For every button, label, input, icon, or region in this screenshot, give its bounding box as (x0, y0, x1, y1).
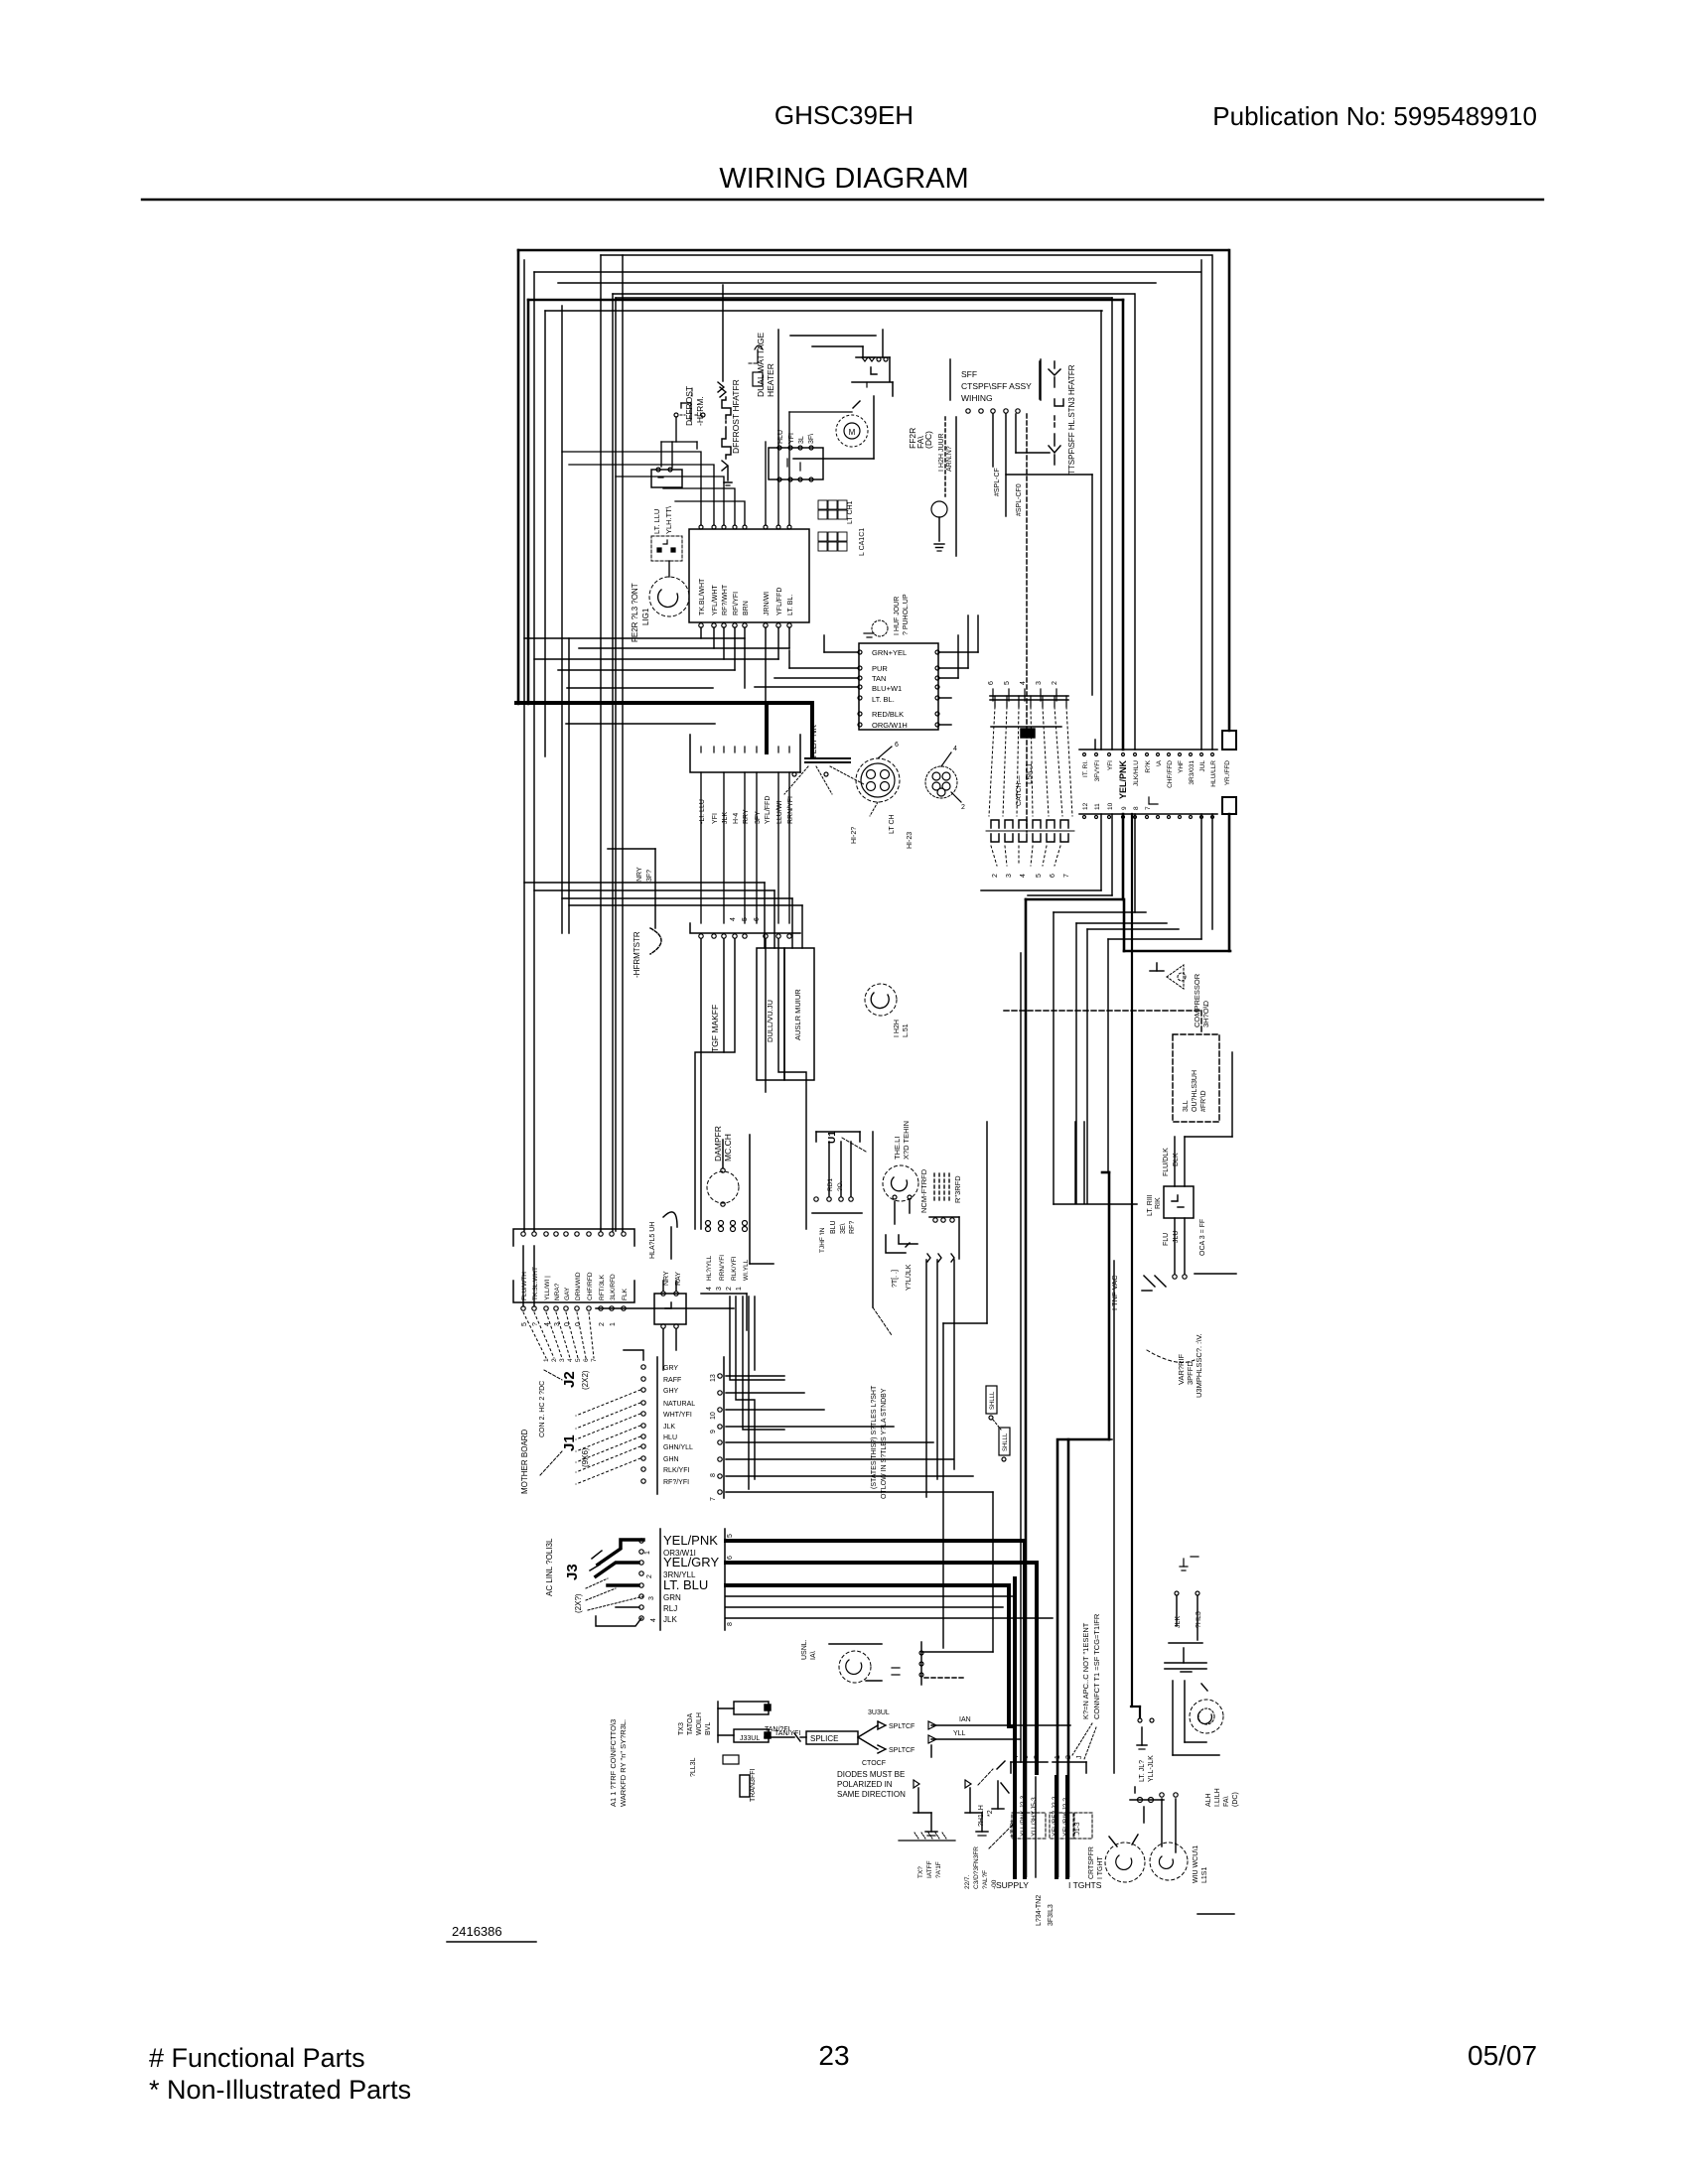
svg-text:BRN: BRN (743, 601, 750, 615)
svg-text:RRY: RRY (743, 809, 750, 824)
svg-text:RLJ: RLJ (663, 1604, 677, 1613)
svg-text:I.LILH: I.LILH (1214, 1788, 1221, 1807)
svg-text:JLU: JLU (1173, 1231, 1180, 1243)
svg-text:AC LINL ?OLI3L: AC LINL ?OLI3L (545, 1538, 554, 1596)
svg-text:TAN/?FI: TAN/?FI (765, 1726, 790, 1733)
svg-text:HI-2?: HI-2? (851, 827, 858, 844)
svg-text:3LK/RFD: 3LK/RFD (610, 1274, 617, 1300)
svg-text:2: 2 (726, 1287, 733, 1291)
svg-text:FA\: FA\ (1223, 1796, 1230, 1807)
svg-text:#SPL-CF0: #SPL-CF0 (1016, 483, 1023, 516)
svg-text:CRTSPFR: CRTSPFR (1088, 1846, 1095, 1879)
svg-text:3F\: 3F\ (808, 434, 815, 444)
svg-text:MOTHER BOARD: MOTHER BOARD (520, 1429, 529, 1494)
svg-text:TGF MAKFF: TGF MAKFF (710, 1005, 720, 1052)
svg-text:COMPRESSOR: COMPRESSOR (1193, 973, 1201, 1027)
svg-text:? PUHOL.UP: ? PUHOL.UP (903, 594, 910, 635)
svg-text:3L: 3L (798, 436, 805, 444)
svg-text:GRN: GRN (663, 1593, 681, 1602)
svg-text:3F\/YFI: 3F\/YFI (1094, 760, 1101, 782)
svg-text:6: 6 (988, 681, 995, 685)
svg-text:CTOCF: CTOCF (862, 1760, 886, 1767)
svg-text:3: 3 (559, 1358, 566, 1362)
svg-text:TK.BL/WHT: TK.BL/WHT (699, 578, 706, 615)
svg-text:YFL/WHT: YFL/WHT (712, 585, 719, 615)
svg-text:3PFFD: 3PFFD (1186, 1361, 1195, 1385)
svg-text:2: 2 (599, 1322, 606, 1326)
svg-text:HL?/YLL: HL?/YLL (706, 1255, 713, 1281)
svg-text:WHT/YFI: WHT/YFI (663, 1412, 692, 1419)
svg-text:(STATES THIS?) S?TLES L?SHT: (STATES THIS?) S?TLES L?SHT (871, 1385, 878, 1489)
svg-text:IAN: IAN (959, 1716, 971, 1723)
svg-text:3F?: 3F? (646, 870, 653, 882)
svg-text:13: 13 (710, 1374, 717, 1382)
svg-text:JLK: JLK (722, 812, 729, 824)
svg-text:?T[. .]: ?T[. .] (892, 1270, 899, 1288)
svg-text:3: 3 (1006, 874, 1013, 878)
svg-text:LT. BLU: LT. BLU (663, 1577, 708, 1592)
svg-text:NATURAL: NATURAL (663, 1401, 695, 1408)
svg-text:RRN/YFI: RRN/YFI (787, 796, 794, 824)
svg-text:I H2H: I H2H (894, 1020, 901, 1037)
svg-text:SPLICE: SPLICE (810, 1734, 838, 1743)
svg-text:SHLLL: SHLLL (1003, 1433, 1009, 1451)
svg-text:4: 4 (650, 1618, 657, 1622)
svg-text:LLU/WI: LLU/WI (776, 801, 783, 824)
svg-text:GHY: GHY (663, 1388, 679, 1395)
svg-text:J33UL: J33UL (740, 1735, 760, 1742)
svg-text:9: 9 (1121, 806, 1128, 810)
svg-text:RLK/YFI: RLK/YFI (731, 1256, 738, 1281)
svg-text:K?=N APC..C NOT "1ESENT: K?=N APC..C NOT "1ESENT (1081, 1622, 1090, 1719)
svg-text:-LI. LLU: -LI. LLU (699, 799, 706, 824)
svg-text:X?D TEHIN: X?D TEHIN (902, 1121, 911, 1160)
svg-text:SPLTCF: SPLTCF (889, 1747, 914, 1754)
svg-text:3R3/031: 3R3/031 (1189, 760, 1196, 785)
svg-text:DFFROST: DFFROST (684, 386, 694, 426)
svg-text:2: 2 (1052, 681, 1058, 685)
svg-text:RF?: RF? (849, 1221, 856, 1234)
svg-text:HLA?L5 UH: HLA?L5 UH (649, 1222, 656, 1259)
svg-text:(2X?): (2X?) (574, 1593, 583, 1613)
svg-text:GHSC39EH: GHSC39EH (774, 100, 914, 130)
svg-text:1: 1 (543, 1358, 550, 1362)
svg-text:05/07: 05/07 (1468, 2040, 1537, 2071)
svg-text:(DC): (DC) (923, 431, 933, 449)
svg-text:NRY: NRY (636, 867, 643, 882)
svg-text:YEL/PNK: YEL/PNK (1118, 760, 1128, 800)
svg-text:6: 6 (1023, 1755, 1030, 1759)
svg-text:3: 3 (1036, 681, 1043, 685)
svg-text:RAFF: RAFF (663, 1377, 681, 1384)
svg-text:YLL-JLK: YLL-JLK (1148, 1755, 1155, 1782)
svg-text:R?K: R?K (1145, 759, 1152, 772)
svg-text:WIHING: WIHING (961, 393, 993, 403)
svg-text:TAN: TAN (872, 674, 886, 683)
svg-text:Y?L/JLK: Y?L/JLK (906, 1264, 913, 1291)
svg-text:FE2R ?L3 ?ONT: FE2R ?L3 ?ONT (631, 583, 639, 642)
svg-text:CON 2. HC 2 ?DC: CON 2. HC 2 ?DC (539, 1381, 546, 1437)
svg-text:9: 9 (710, 1430, 717, 1433)
svg-text:GHN/YLL: GHN/YLL (663, 1444, 693, 1451)
svg-text:HEATER: HEATER (766, 363, 775, 397)
svg-text:6: 6 (1050, 874, 1056, 878)
svg-text:DFFROST HFATFR: DFFROST HFATFR (731, 379, 741, 454)
svg-text:7: 7 (710, 1497, 717, 1501)
svg-text:NRY: NRY (663, 1271, 670, 1286)
svg-text:4: 4 (567, 1358, 574, 1362)
svg-text:NRA?: NRA? (554, 1283, 561, 1300)
svg-text:H-4: H-4 (733, 813, 740, 824)
svg-text:TX?: TX? (917, 1866, 924, 1878)
svg-text:7: 7 (1063, 874, 1070, 878)
svg-text:I TNF VAC: I TNF VAC (1110, 1275, 1119, 1310)
svg-text:HLU/LLR: HLU/LLR (1210, 760, 1217, 787)
svg-text:?HL3: ?HL3 (1196, 1611, 1202, 1628)
svg-text:YLL: YLL (953, 1730, 966, 1737)
svg-text:5: 5 (727, 1534, 734, 1538)
svg-text:FLK: FLK (622, 1288, 629, 1300)
svg-text:HI-23: HI-23 (907, 832, 914, 849)
svg-text:3U3UL: 3U3UL (868, 1709, 890, 1716)
svg-text:YFL/FFD: YFL/FFD (765, 796, 772, 824)
svg-text:3: 3 (554, 1322, 561, 1326)
svg-text:GAY: GAY (564, 1287, 571, 1300)
svg-text:?H1LH: ?H1LH (978, 1805, 985, 1827)
svg-text:J2: J2 (561, 1371, 578, 1388)
svg-text:GHN: GHN (663, 1456, 679, 1463)
svg-text:OU?HLS3UH: OU?HLS3UH (1192, 1070, 1198, 1112)
svg-text:4: 4 (706, 1287, 713, 1291)
svg-text:DRN/WID: DRN/WID (575, 1272, 582, 1300)
svg-text:CHF/FFD: CHF/FFD (1167, 760, 1174, 788)
svg-text:FLU/WTH: FLU/WTH (521, 1272, 528, 1300)
svg-text:C3/D?3FN3FR: C3/D?3FN3FR (973, 1846, 980, 1889)
svg-text:LT CH: LT CH (889, 814, 896, 834)
svg-text:RFT/3LK: RFT/3LK (599, 1274, 606, 1300)
svg-text:3H?O\D: 3H?O\D (1201, 1000, 1210, 1027)
svg-text:0: 0 (575, 1322, 582, 1326)
svg-text:?A'1F: ?A'1F (935, 1861, 942, 1878)
svg-text:?: ? (532, 1322, 539, 1326)
svg-text:5: 5 (1004, 681, 1011, 685)
svg-text:YEL/PNK: YEL/PNK (663, 1533, 718, 1548)
svg-text:BLU+W1: BLU+W1 (872, 684, 902, 693)
svg-text:2: 2 (961, 804, 965, 811)
svg-text:I TGHT: I TGHT (1097, 1855, 1104, 1879)
svg-text:RED/BLK: RED/BLK (872, 710, 904, 719)
svg-text:4: 4 (1020, 874, 1027, 878)
svg-text:TRAN3FFI: TRAN3FFI (750, 1769, 757, 1803)
svg-text:OTLOW IN S?TLES Y?LA STNDBY: OTLOW IN S?TLES Y?LA STNDBY (881, 1388, 888, 1499)
svg-text:4: 4 (730, 917, 737, 921)
svg-text:10: 10 (1107, 802, 1114, 810)
svg-text:(DC): (DC) (1232, 1792, 1239, 1807)
svg-text:JRN/WI: JRN/WI (764, 592, 771, 615)
svg-text:JLK: JLK (663, 1615, 677, 1624)
svg-text:WIU WCU\1: WIU WCU\1 (1193, 1845, 1199, 1883)
svg-text:JUL: JUL (1199, 760, 1206, 772)
svg-text:RIK: RIK (1155, 1197, 1162, 1209)
svg-text:#SPL-CF: #SPL-CF (994, 468, 1001, 496)
svg-text:PUR: PUR (872, 664, 888, 673)
svg-text:3: 3 (1034, 1755, 1041, 1759)
svg-text:IA\: IA\ (810, 1651, 817, 1660)
svg-text:YLL/PNK: YLL/PNK (808, 725, 818, 759)
svg-text:L1S1: L1S1 (1201, 1867, 1208, 1883)
svg-text:?AL?F: ?AL?F (982, 1870, 989, 1889)
svg-text:SUPPLY: SUPPLY (996, 1880, 1029, 1890)
svg-text:LIG1: LIG1 (641, 608, 650, 625)
svg-text:ALH: ALH (1205, 1793, 1212, 1807)
svg-text:* Non-Illustrated Parts: * Non-Illustrated Parts (149, 2075, 411, 2105)
svg-text:3FY: 3FY (755, 811, 762, 824)
svg-text:NCM-FTRFD: NCM-FTRFD (919, 1168, 928, 1213)
svg-text:RF?/WHT: RF?/WHT (722, 584, 729, 615)
svg-text:3: 3 (716, 1287, 723, 1291)
svg-text:I TGHTS: I TGHTS (1068, 1880, 1102, 1890)
svg-text:6: 6 (895, 742, 899, 749)
svg-text:RF\/YFI: RF\/YFI (733, 592, 740, 615)
svg-text:J1: J1 (561, 1434, 578, 1451)
svg-text:?LL3L: ?LL3L (690, 1757, 697, 1777)
svg-text:\A: \A (1156, 759, 1163, 766)
svg-text:?O.: ?O. (837, 1180, 844, 1191)
svg-text:TATOA: TATOA (687, 1713, 694, 1736)
svg-text:8: 8 (1133, 806, 1140, 810)
svg-text:YFI: YFI (1107, 760, 1114, 770)
svg-text:.J1-3: .J1-3 (1074, 1822, 1081, 1837)
svg-text:U3MPHLSSC?. :\V.: U3MPHLSSC?. :\V. (1195, 1333, 1203, 1398)
svg-text:8: 8 (727, 1622, 734, 1626)
svg-text:IATFF: IATFF (926, 1860, 933, 1878)
svg-text:IT. RI.: IT. RI. (1082, 760, 1089, 777)
svg-text:CTSPF\SFF ASSY: CTSPF\SFF ASSY (961, 381, 1032, 391)
svg-text:2: 2 (646, 1574, 653, 1578)
svg-text:TK.3L.WHT: TK.3L.WHT (532, 1267, 539, 1300)
svg-text:DLK: DLK (1173, 1153, 1180, 1166)
svg-text:ORG/W1H: ORG/W1H (872, 721, 908, 730)
svg-text:LT. BL.: LT. BL. (787, 595, 794, 615)
svg-text:5: 5 (1036, 874, 1043, 878)
svg-text:DULL/VU.JU: DULL/VU.JU (766, 1000, 774, 1042)
svg-text:FLU: FLU (1163, 1233, 1170, 1246)
svg-text:6: 6 (583, 1358, 590, 1362)
svg-text:-HFRM.: -HFRM. (695, 396, 705, 426)
svg-text:YFL/FFD: YFL/FFD (776, 588, 783, 615)
svg-text:LT. BL.: LT. BL. (872, 695, 895, 704)
svg-text:L?34-TN2: L?34-TN2 (1036, 1895, 1043, 1926)
svg-text:YLL/WI |: YLL/WI | (544, 1276, 551, 1300)
svg-text:LT. JL?: LT. JL? (1139, 1760, 1146, 1782)
svg-text:WIRING DIAGRAM: WIRING DIAGRAM (719, 163, 968, 195)
svg-text:YR./FFD: YR./FFD (1224, 760, 1231, 786)
svg-text:JLK: JLK (1175, 1616, 1182, 1628)
svg-text:HLU: HLU (663, 1434, 677, 1441)
svg-text:I H2H JUUR: I H2H JUUR (938, 433, 945, 472)
svg-text:DUAL WATTAGE: DUAL WATTAGE (756, 333, 766, 398)
svg-text:RF?/YFI: RF?/YFI (663, 1479, 689, 1486)
svg-text:BLU: BLU (830, 1220, 837, 1234)
svg-text:VAR?RIF: VAR?RIF (1177, 1353, 1186, 1385)
svg-text:YHF: YHF (1178, 760, 1185, 773)
svg-text:4: 4 (1020, 681, 1027, 685)
svg-text:1: 1 (1055, 1755, 1061, 1759)
svg-text:M: M (849, 428, 856, 437)
svg-text:GRN+YEL: GRN+YEL (872, 648, 907, 657)
svg-text:WI.YLL: WI.YLL (743, 1259, 750, 1281)
svg-text:OCA 3 = FF: OCA 3 = FF (1199, 1219, 1206, 1256)
svg-text:Publication No: 5995489910: Publication No: 5995489910 (1212, 101, 1537, 131)
svg-text:TTSPF\SFF HL.STN3 HFATFR: TTSPF\SFF HL.STN3 HFATFR (1067, 364, 1076, 475)
svg-text:6: 6 (754, 917, 761, 921)
svg-text:CONNFCT T1 =SF TCG=T1IFR: CONNFCT T1 =SF TCG=T1IFR (1092, 1613, 1101, 1719)
svg-text:RRN/YFI: RRN/YFI (719, 1255, 726, 1281)
svg-text:J3: J3 (564, 1564, 581, 1580)
svg-text:6: 6 (727, 1556, 734, 1560)
svg-text:TX3: TX3 (678, 1722, 685, 1735)
svg-text:AUSLR MUIUR: AUSLR MUIUR (793, 989, 802, 1040)
svg-text:SHLLL: SHLLL (990, 1391, 996, 1410)
svg-text:1: 1 (644, 1551, 651, 1555)
svg-text:-HFRMTSTR: -HFRMTSTR (633, 931, 641, 978)
svg-text:YFI: YFI (712, 813, 719, 824)
svg-text:A1 1 ?TRF CO\NFCTTO\3: A1 1 ?TRF CO\NFCTTO\3 (609, 1719, 618, 1807)
svg-text:2: 2 (1065, 1755, 1072, 1759)
svg-text:*2: *2 (987, 1810, 994, 1817)
svg-text:WARKFD RY "n" SY?R3L.: WARKFD RY "n" SY?R3L. (619, 1719, 628, 1807)
svg-text:J: J (1076, 1756, 1083, 1760)
svg-text:12: 12 (1082, 802, 1089, 810)
svg-text:3F3IL3: 3F3IL3 (1048, 1904, 1055, 1926)
svg-text:(2X2): (2X2) (581, 1370, 590, 1390)
svg-text:YLH.TT\: YLH.TT\ (664, 505, 673, 534)
svg-text:I HUF JOUR: I HUF JOUR (894, 597, 901, 635)
svg-text:LT. RIII: LT. RIII (1147, 1194, 1154, 1216)
svg-text:5: 5 (742, 917, 749, 921)
svg-text:1: 1 (610, 1322, 617, 1326)
svg-text:22/7.: 22/7. (964, 1874, 971, 1889)
svg-text:8: 8 (710, 1473, 717, 1477)
svg-text:2416386: 2416386 (452, 1924, 502, 1939)
svg-text:23: 23 (818, 2040, 849, 2071)
svg-text:7: 7 (1145, 806, 1152, 810)
svg-text:2: 2 (992, 874, 999, 878)
svg-text:JLK: JLK (663, 1424, 675, 1431)
svg-text:JLK/HLU: JLK/HLU (1133, 760, 1140, 786)
svg-text:4: 4 (953, 746, 957, 752)
svg-text:4: 4 (1013, 1755, 1020, 1759)
svg-text:TJHF 'IN: TJHF 'IN (819, 1227, 826, 1253)
svg-text:ARN.N?: ARN.N? (946, 446, 953, 472)
svg-text:DAMPFR: DAMPFR (713, 1126, 723, 1161)
svg-text:2: 2 (551, 1358, 558, 1362)
svg-text:R"3RFD: R"3RFD (953, 1175, 962, 1203)
svg-text:RLK/YFI: RLK/YFI (663, 1467, 690, 1474)
svg-text:THE.LI: THE.LI (893, 1137, 902, 1160)
svg-text:3: 3 (648, 1596, 655, 1600)
svg-text:SPLTCF: SPLTCF (889, 1723, 914, 1730)
svg-text:DIODES MUST BE: DIODES MUST BE (837, 1770, 905, 1779)
svg-text:L.51: L.51 (903, 1024, 910, 1037)
svg-text:FLU/DLK: FLU/DLK (1163, 1148, 1170, 1176)
svg-text:LT CH1: LT CH1 (847, 500, 854, 524)
svg-text:YLL/3HY.J5-3: YLL/3HY.J5-3 (1031, 1797, 1038, 1837)
svg-text:USNL.: USNL. (801, 1639, 808, 1660)
svg-text:GRY: GRY (663, 1365, 678, 1372)
svg-text:10: 10 (710, 1412, 717, 1420)
svg-text:WOILH: WOILH (696, 1712, 703, 1735)
svg-text:YEL/GRY: YEL/GRY (663, 1555, 719, 1570)
svg-text:POLARIZED IN: POLARIZED IN (837, 1780, 893, 1789)
svg-text:BVL: BVL (705, 1722, 712, 1735)
svg-text:3LL: 3LL (1183, 1100, 1190, 1112)
svg-text:0: 0 (564, 1322, 571, 1326)
svg-text:#FR'\D: #FR'\D (1200, 1090, 1207, 1112)
svg-text:5: 5 (575, 1358, 582, 1362)
svg-text:5: 5 (521, 1322, 528, 1326)
svg-text:7: 7 (591, 1358, 598, 1362)
svg-text:1: 1 (736, 1287, 743, 1291)
svg-text:CHF/RFD: CHF/RFD (587, 1272, 594, 1300)
svg-text:RD1: RD1 (827, 1178, 834, 1191)
svg-text:11: 11 (1094, 803, 1101, 810)
svg-text:MC.CH: MC.CH (723, 1134, 733, 1161)
svg-text:L CA1C1: L CA1C1 (859, 528, 866, 556)
svg-text:SFF: SFF (961, 369, 977, 379)
svg-text:# Functional Parts: # Functional Parts (149, 2043, 365, 2073)
svg-text:LT. LLU: LT. LLU (652, 509, 661, 534)
svg-text:SAME DIRECTION: SAME DIRECTION (837, 1790, 906, 1799)
svg-text:3E\: 3E\ (840, 1223, 847, 1234)
